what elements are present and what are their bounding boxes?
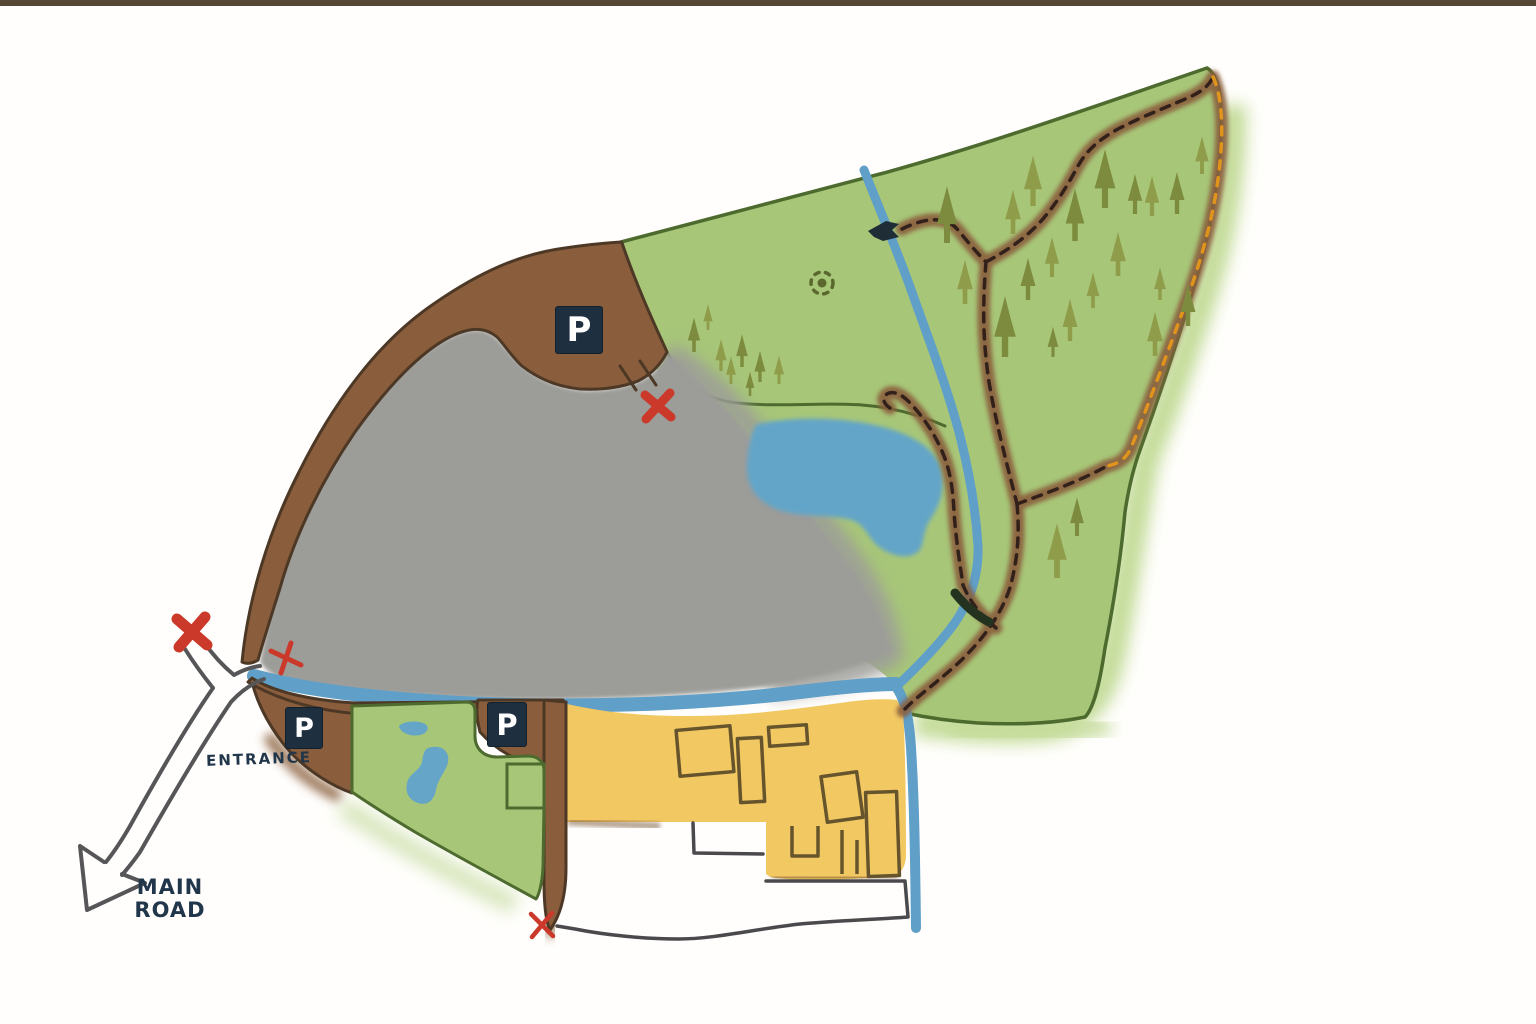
parking-sign-middle: P <box>488 703 526 746</box>
entrance-label: ENTRANCE <box>206 748 313 770</box>
main-road-line1: MAIN <box>118 876 222 899</box>
parking-sign-north: P <box>556 307 602 353</box>
top-accent-bar <box>0 0 1536 6</box>
map-canvas <box>0 0 1536 1024</box>
main-road-label: MAIN ROAD <box>118 876 222 922</box>
park-map: P P P ENTRANCE MAIN ROAD <box>0 0 1536 1024</box>
east-path-strip <box>544 700 566 930</box>
main-road-arrow <box>80 642 264 910</box>
red-cross-entrance <box>177 617 207 647</box>
parking-sign-west: P <box>286 708 322 748</box>
main-road-line2: ROAD <box>118 899 222 922</box>
